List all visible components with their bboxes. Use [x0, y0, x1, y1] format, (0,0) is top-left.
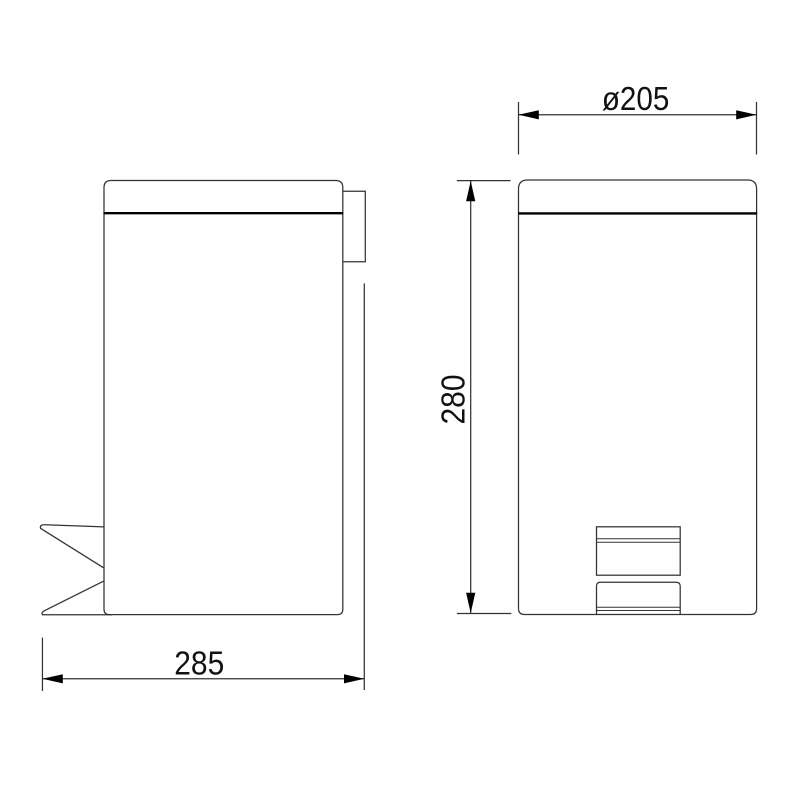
svg-text:280: 280 — [435, 375, 472, 425]
svg-text:ø205: ø205 — [602, 80, 670, 117]
svg-text:285: 285 — [174, 645, 224, 682]
